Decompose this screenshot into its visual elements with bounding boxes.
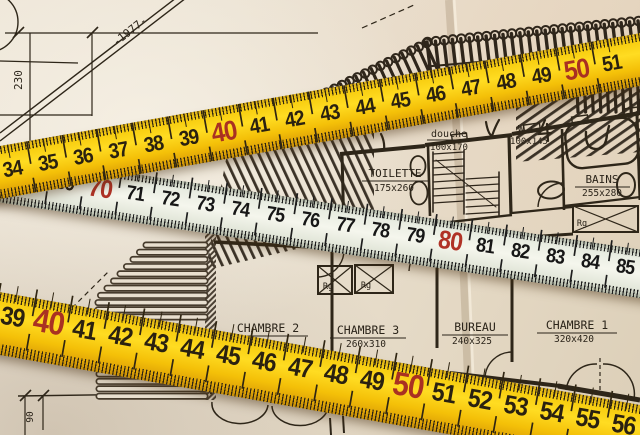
room-size-wc: 100x145	[510, 137, 548, 147]
tape-number: 39	[177, 125, 200, 153]
tape-number: 82	[510, 238, 531, 264]
tape-number: 80	[436, 224, 464, 257]
tape-number: 50	[562, 53, 592, 88]
tape-number: 71	[125, 180, 146, 206]
closet-label-rg-1: Rg	[323, 282, 333, 292]
tape-number: 51	[600, 51, 623, 79]
tape-number: 43	[142, 325, 170, 359]
tape-number: 74	[230, 196, 251, 222]
tape-number: 46	[250, 344, 278, 378]
tape-number: 55	[573, 401, 601, 435]
tape-number: 53	[502, 388, 530, 422]
tape-number: 83	[545, 243, 566, 269]
room-label-wc: W.C.	[518, 124, 542, 135]
closet-label-rg-3: Rg	[577, 219, 587, 229]
tape-number: 54	[538, 395, 566, 429]
tape-number: 75	[265, 201, 286, 227]
tape-number: 43	[318, 100, 341, 128]
tape-number: 38	[142, 132, 165, 160]
tape-number: 47	[286, 350, 314, 384]
tape-number: 37	[107, 138, 130, 166]
tape-number: 45	[389, 88, 412, 116]
tape-number: 45	[214, 338, 242, 372]
tape-number: 47	[459, 76, 482, 104]
room-label-toilette: TOILETTE	[369, 167, 422, 180]
tape-number: 48	[322, 357, 350, 391]
room-size-bureau: 240x325	[452, 336, 492, 347]
tape-number: 51	[430, 376, 458, 410]
tape-number: 49	[358, 363, 386, 397]
tape-number: 42	[283, 107, 306, 135]
tape-number: 40	[30, 302, 67, 345]
room-label-chambre3: CHAMBRE 3	[337, 323, 399, 337]
tape-number: 85	[615, 254, 636, 280]
tape-number: 35	[36, 150, 59, 178]
tape-number: 40	[209, 115, 239, 150]
tape-number: 44	[178, 331, 206, 365]
tape-number: 41	[248, 113, 271, 141]
tape-number: 76	[300, 207, 321, 233]
tape-number: 78	[370, 217, 391, 243]
tape-number: 79	[405, 222, 426, 248]
room-size-douche: 100x170	[430, 143, 468, 153]
room-label-bains: BAINS	[585, 173, 618, 186]
photo-of-floorplan-with-measuring-tapes: 230 -1977- 90 TOILETTE 175x260 douche 10…	[0, 0, 640, 435]
room-size-toilette: 175x260	[374, 183, 414, 194]
room-label-chambre1: CHAMBRE 1	[546, 318, 608, 332]
room-size-chambre1: 320x420	[554, 334, 594, 345]
closet-label-rg-2: Rg	[361, 281, 371, 291]
dim-90: 90	[25, 411, 36, 423]
tape-number: 36	[72, 144, 95, 172]
tape-number: 50	[390, 365, 427, 408]
tape-number: 56	[609, 407, 637, 435]
tape-cm-cell: 85	[604, 240, 640, 293]
tape-number: 44	[354, 94, 377, 122]
tape-number: 41	[70, 312, 98, 346]
room-label-bureau: BUREAU	[454, 320, 496, 334]
tape-number: 72	[160, 186, 181, 212]
tape-number: 52	[466, 382, 494, 416]
tape-number: 34	[1, 156, 24, 184]
tape-number: 77	[335, 212, 356, 238]
room-label-douche: douche	[431, 129, 467, 140]
tape-cm-cell: 51	[590, 36, 634, 93]
tape-number: 48	[495, 69, 518, 97]
tape-number: 39	[0, 300, 27, 334]
tape-number: 73	[195, 191, 216, 217]
tape-number: 42	[106, 319, 134, 353]
tape-number: 81	[475, 233, 496, 259]
tape-number: 49	[530, 63, 553, 91]
tape-number: 84	[580, 248, 601, 274]
tape-number: 46	[424, 82, 447, 110]
dim-230: 230	[12, 70, 25, 90]
room-size-bains: 255x280	[582, 188, 622, 199]
